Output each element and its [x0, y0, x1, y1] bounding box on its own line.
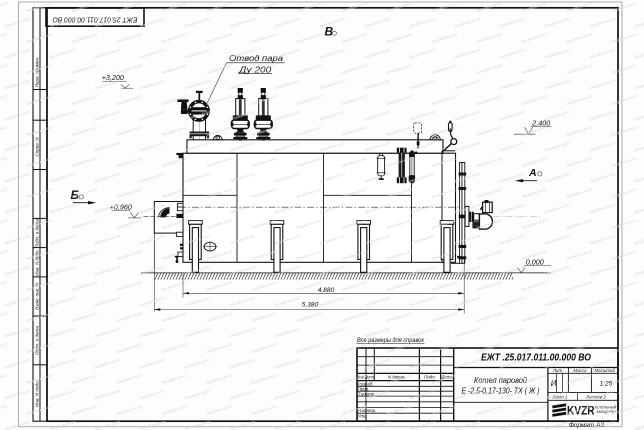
svg-text:Лит.: Лит.: [552, 368, 563, 373]
svg-text:Разраб.: Разраб.: [358, 381, 374, 386]
svg-text:Инв. N подл.: Инв. N подл.: [34, 380, 39, 407]
svg-text:Утв.: Утв.: [358, 414, 368, 419]
svg-text:ЕЖТ .25.017.011.00.000 ВО: ЕЖТ .25.017.011.00.000 ВО: [481, 351, 591, 363]
svg-text:Справ. N: Справ. N: [34, 137, 39, 157]
svg-text:Все размеры для справок: Все размеры для справок: [357, 337, 425, 344]
svg-text:Масштаб: Масштаб: [594, 368, 615, 373]
svg-text:А: А: [528, 167, 537, 179]
svg-text:И: И: [551, 379, 557, 388]
svg-text:КОТЕЛЬНЫЙ: КОТЕЛЬНЫЙ: [595, 406, 617, 410]
svg-text:4,880: 4,880: [318, 287, 335, 294]
svg-text:5,380: 5,380: [302, 302, 319, 309]
svg-text:Масса: Масса: [573, 368, 587, 373]
